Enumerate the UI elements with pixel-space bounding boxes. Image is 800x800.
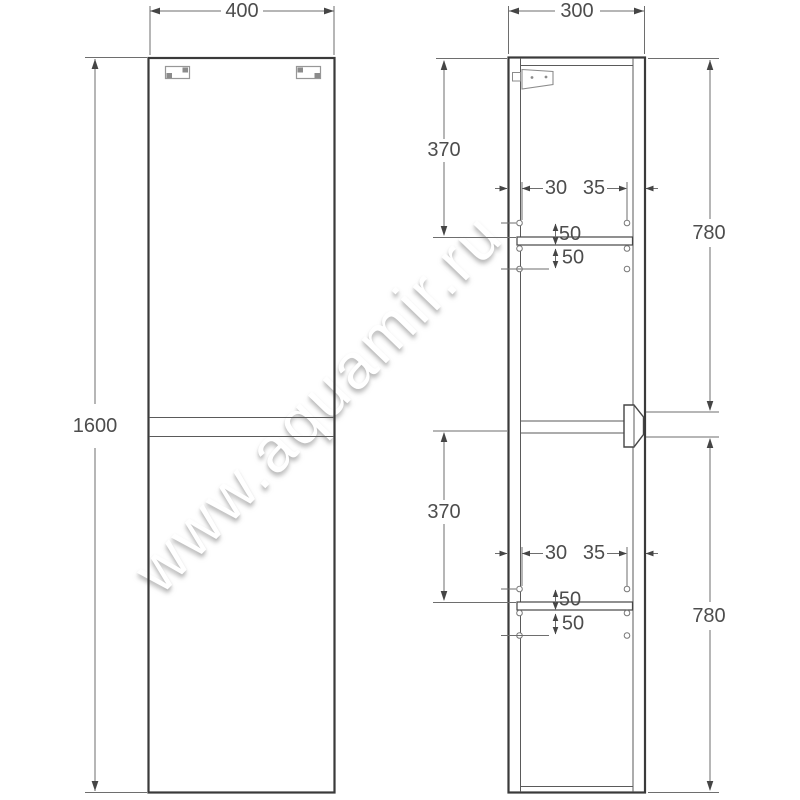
label-upper-hole-offset-back: 30: [545, 177, 567, 199]
label-lower-inner-height: 370: [427, 501, 460, 523]
side-view: [509, 58, 646, 793]
label-lower-hole-offset-front: 35: [583, 542, 605, 564]
label-side-depth: 300: [560, 0, 593, 22]
label-upper-hole-above: 50: [559, 223, 581, 245]
shelf-pin-holes: [517, 220, 630, 638]
wall-bracket-right: [297, 67, 321, 79]
label-front-height: 1600: [73, 415, 118, 437]
label-upper-hole-below: 50: [562, 247, 584, 269]
door-handle: [624, 405, 644, 447]
dimensions: [85, 6, 719, 793]
dim-lower-hole-offsets: [495, 547, 658, 586]
dimension-labels: 400 1600 300 370 780 30 35 50 50 370 780…: [73, 0, 726, 635]
label-lower-door-height: 780: [692, 605, 725, 627]
dim-upper-hole-offsets: [495, 182, 658, 220]
hanging-bracket: [513, 70, 554, 90]
label-upper-inner-height: 370: [427, 139, 460, 161]
label-lower-hole-offset-back: 30: [545, 542, 567, 564]
label-front-width: 400: [225, 0, 258, 22]
label-upper-hole-offset-front: 35: [583, 177, 605, 199]
cabinet-technical-drawing: www.aquamir.ru: [0, 0, 800, 800]
wall-bracket-left: [166, 67, 190, 79]
label-lower-hole-below: 50: [562, 613, 584, 635]
front-view: [149, 58, 335, 793]
label-upper-door-height: 780: [692, 222, 725, 244]
front-cabinet-outline: [149, 58, 335, 793]
label-lower-hole-above: 50: [559, 589, 581, 611]
drawing-svg: 400 1600 300 370 780 30 35 50 50 370 780…: [0, 0, 800, 800]
